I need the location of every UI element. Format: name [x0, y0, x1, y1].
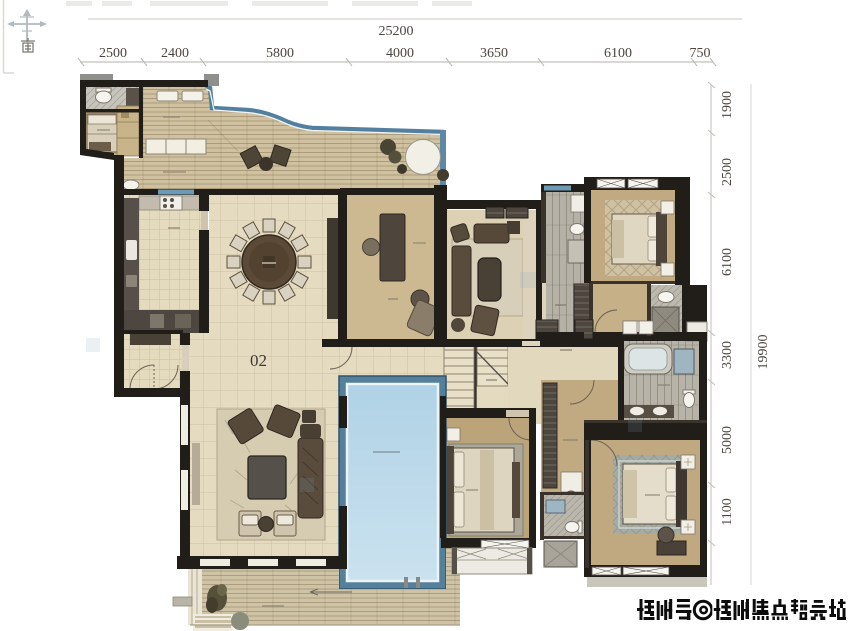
svg-text:750: 750: [690, 46, 711, 61]
svg-text:2400: 2400: [161, 46, 189, 61]
svg-text:1900: 1900: [720, 91, 735, 119]
svg-text:6100: 6100: [604, 46, 632, 61]
svg-text:3300: 3300: [720, 341, 735, 369]
svg-text:6100: 6100: [720, 248, 735, 276]
svg-text:5800: 5800: [266, 46, 294, 61]
svg-text:4000: 4000: [386, 46, 414, 61]
svg-text:2500: 2500: [99, 46, 127, 61]
svg-text:5000: 5000: [720, 426, 735, 454]
svg-text:25200: 25200: [379, 24, 414, 39]
svg-text:02: 02: [250, 351, 267, 370]
svg-text:1100: 1100: [720, 498, 735, 525]
svg-text:2500: 2500: [720, 158, 735, 186]
svg-text:19900: 19900: [756, 335, 771, 370]
svg-text:3650: 3650: [480, 46, 508, 61]
